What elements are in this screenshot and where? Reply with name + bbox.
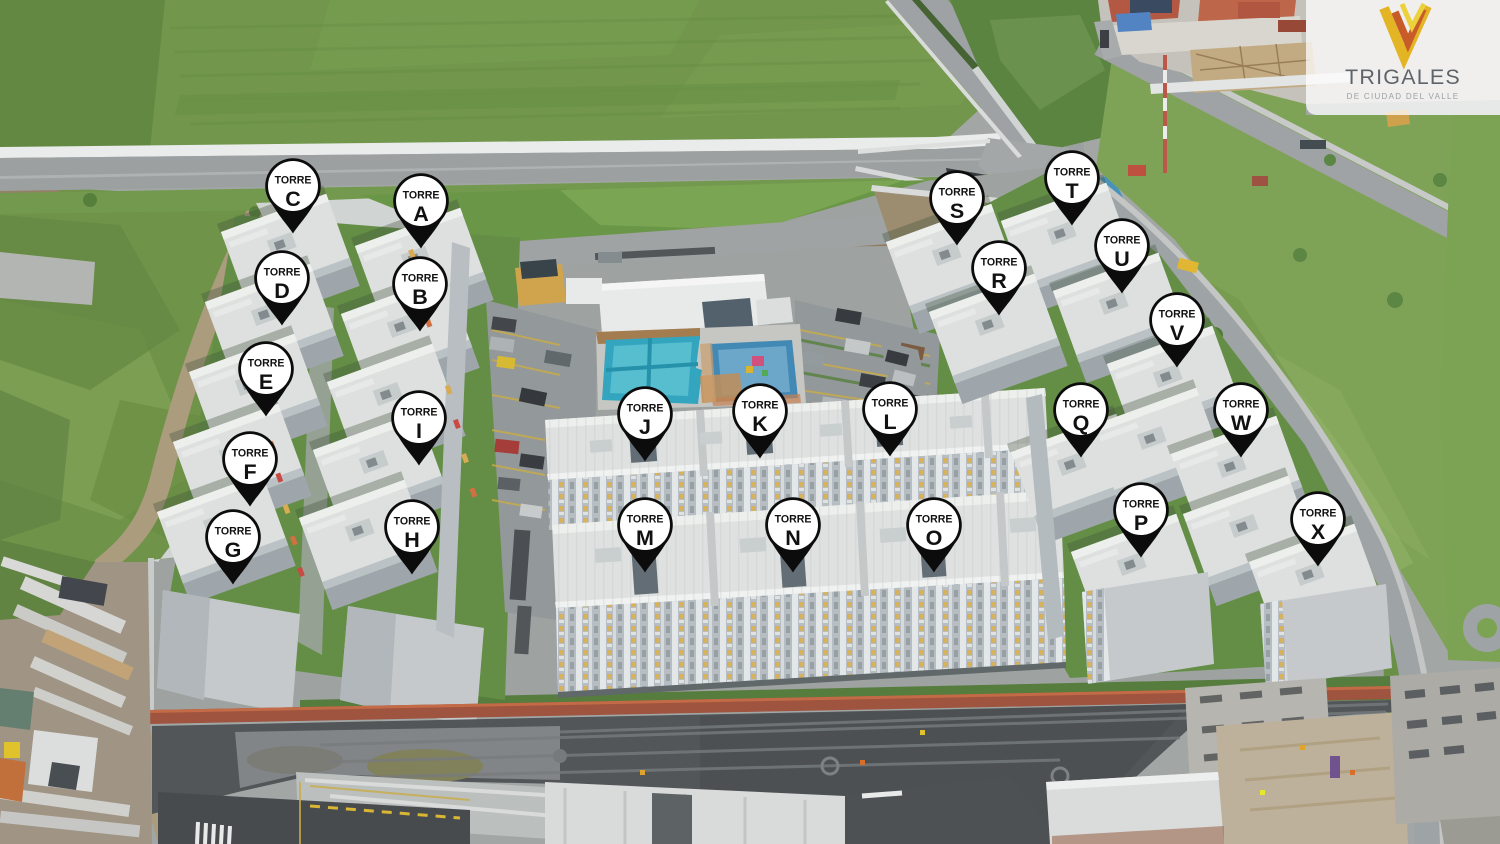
svg-text:J: J <box>639 415 651 439</box>
svg-text:TORRE: TORRE <box>1054 167 1091 179</box>
svg-text:H: H <box>404 528 420 552</box>
svg-text:TRIGALES: TRIGALES <box>1345 65 1461 89</box>
svg-text:TORRE: TORRE <box>401 407 438 419</box>
svg-text:Q: Q <box>1073 411 1090 435</box>
svg-text:TORRE: TORRE <box>916 514 953 526</box>
svg-text:P: P <box>1134 511 1148 535</box>
svg-text:TORRE: TORRE <box>215 526 252 538</box>
svg-text:TORRE: TORRE <box>627 514 664 526</box>
svg-text:D: D <box>274 279 290 303</box>
svg-text:TORRE: TORRE <box>232 448 269 460</box>
svg-text:TORRE: TORRE <box>394 516 431 528</box>
svg-text:G: G <box>225 538 242 562</box>
svg-text:V: V <box>1170 321 1185 345</box>
svg-text:TORRE: TORRE <box>981 257 1018 269</box>
svg-text:TORRE: TORRE <box>402 273 439 285</box>
svg-text:E: E <box>259 370 273 394</box>
svg-text:TORRE: TORRE <box>1223 399 1260 411</box>
svg-text:TORRE: TORRE <box>403 190 440 202</box>
svg-text:R: R <box>991 269 1007 293</box>
svg-text:N: N <box>785 526 801 550</box>
svg-text:TORRE: TORRE <box>275 175 312 187</box>
svg-text:O: O <box>926 526 943 550</box>
svg-text:TORRE: TORRE <box>1063 399 1100 411</box>
svg-text:L: L <box>883 410 896 434</box>
svg-text:X: X <box>1311 520 1326 544</box>
svg-text:S: S <box>950 199 964 223</box>
svg-text:TORRE: TORRE <box>775 514 812 526</box>
svg-text:TORRE: TORRE <box>1300 508 1337 520</box>
svg-text:T: T <box>1065 179 1078 203</box>
svg-text:U: U <box>1114 247 1130 271</box>
svg-text:K: K <box>752 412 768 436</box>
svg-text:TORRE: TORRE <box>627 403 664 415</box>
svg-text:A: A <box>413 202 429 226</box>
svg-text:TORRE: TORRE <box>1159 309 1196 321</box>
svg-text:TORRE: TORRE <box>1123 499 1160 511</box>
svg-text:B: B <box>412 285 428 309</box>
svg-text:TORRE: TORRE <box>939 187 976 199</box>
svg-text:TORRE: TORRE <box>264 267 301 279</box>
svg-text:F: F <box>243 460 256 484</box>
svg-text:TORRE: TORRE <box>872 398 909 410</box>
svg-text:W: W <box>1231 411 1252 435</box>
svg-text:TORRE: TORRE <box>742 400 779 412</box>
svg-text:M: M <box>636 526 654 550</box>
svg-text:DE CIUDAD DEL VALLE: DE CIUDAD DEL VALLE <box>1347 92 1460 101</box>
svg-text:TORRE: TORRE <box>248 358 285 370</box>
svg-text:TORRE: TORRE <box>1104 235 1141 247</box>
svg-text:I: I <box>416 419 422 443</box>
svg-text:C: C <box>285 187 301 211</box>
